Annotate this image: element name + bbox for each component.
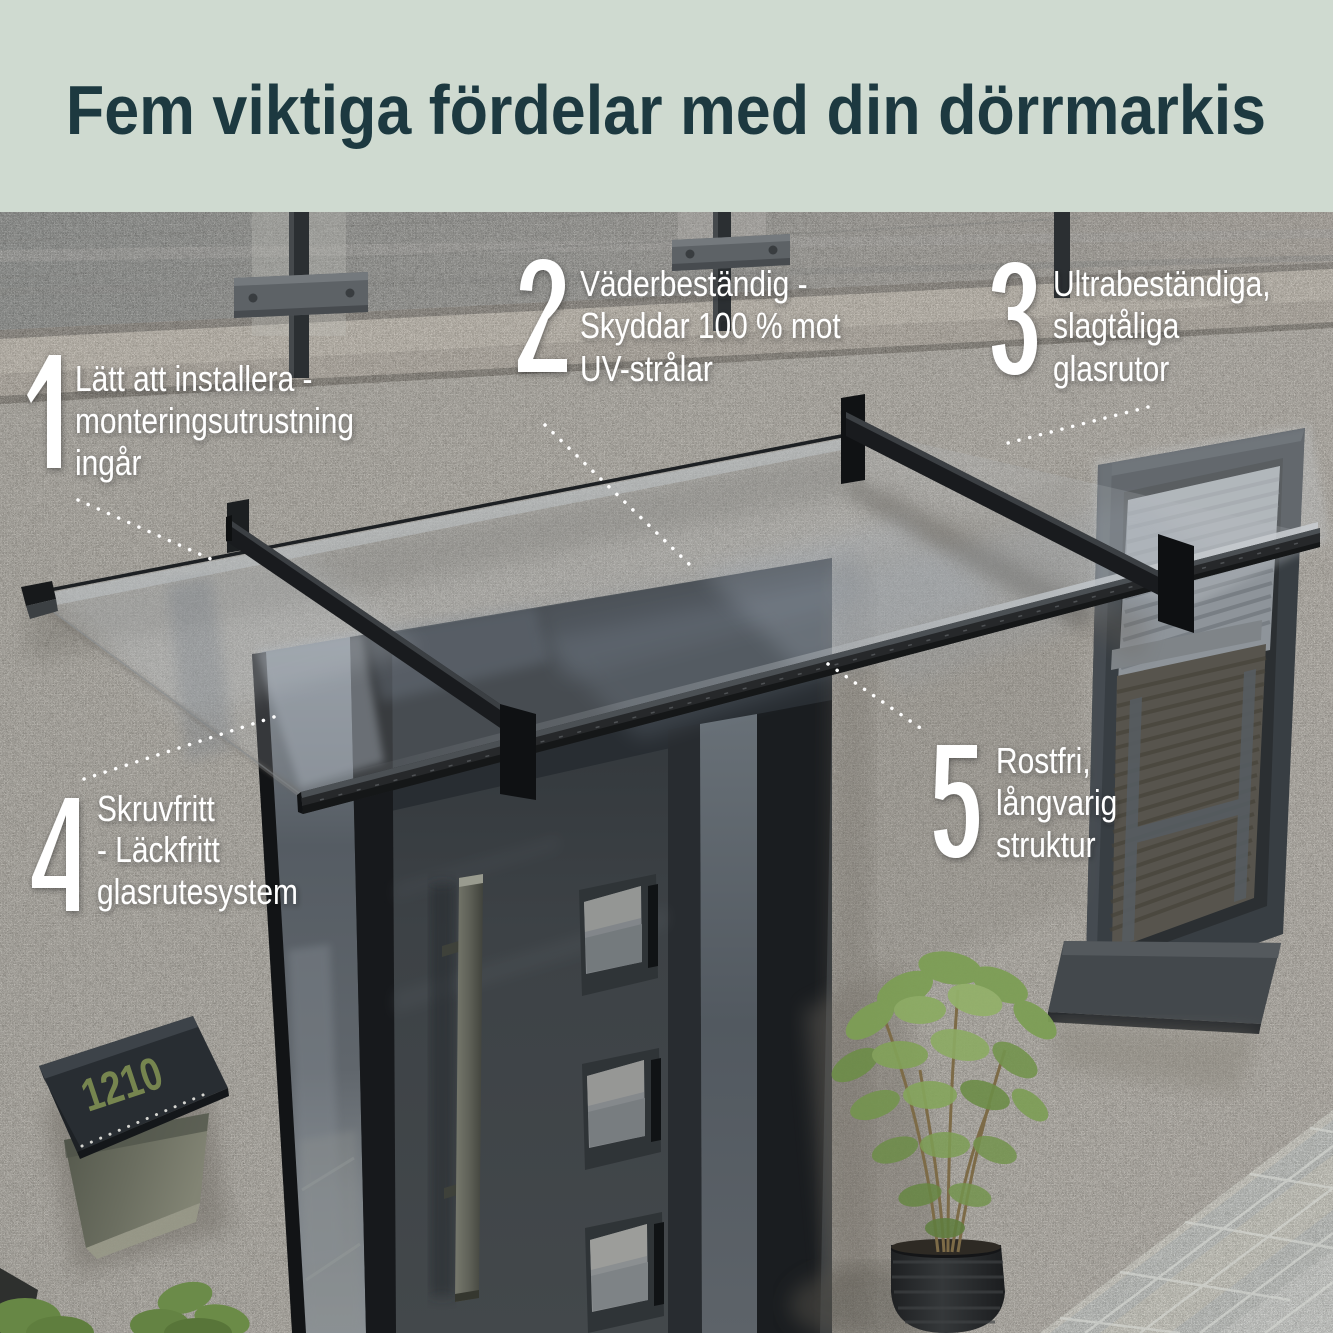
- svg-text:monteringsutrustning: monteringsutrustning: [75, 401, 354, 441]
- svg-text:Skruvfritt: Skruvfritt: [97, 789, 215, 829]
- svg-text:UV-strålar: UV-strålar: [580, 349, 713, 389]
- svg-text:långvarig: långvarig: [996, 783, 1117, 823]
- svg-text:slagtåliga: slagtåliga: [1053, 306, 1180, 346]
- svg-text:ingår: ingår: [75, 443, 141, 483]
- svg-text:Väderbeständig -: Väderbeständig -: [580, 264, 808, 304]
- svg-text:glasrutesystem: glasrutesystem: [97, 872, 298, 912]
- svg-text:struktur: struktur: [996, 825, 1096, 865]
- svg-text:Rostfri,: Rostfri,: [996, 741, 1091, 781]
- svg-text:Lätt att installera -: Lätt att installera -: [75, 359, 312, 399]
- svg-text:Skyddar 100 % mot: Skyddar 100 % mot: [580, 306, 841, 346]
- svg-text:glasrutor: glasrutor: [1053, 349, 1169, 389]
- svg-text:Ultrabeständiga,: Ultrabeständiga,: [1053, 264, 1271, 304]
- svg-text:Fem viktiga fördelar med din d: Fem viktiga fördelar med din dörrmarkis: [66, 72, 1266, 150]
- svg-text:- Läckfritt: - Läckfritt: [97, 830, 220, 870]
